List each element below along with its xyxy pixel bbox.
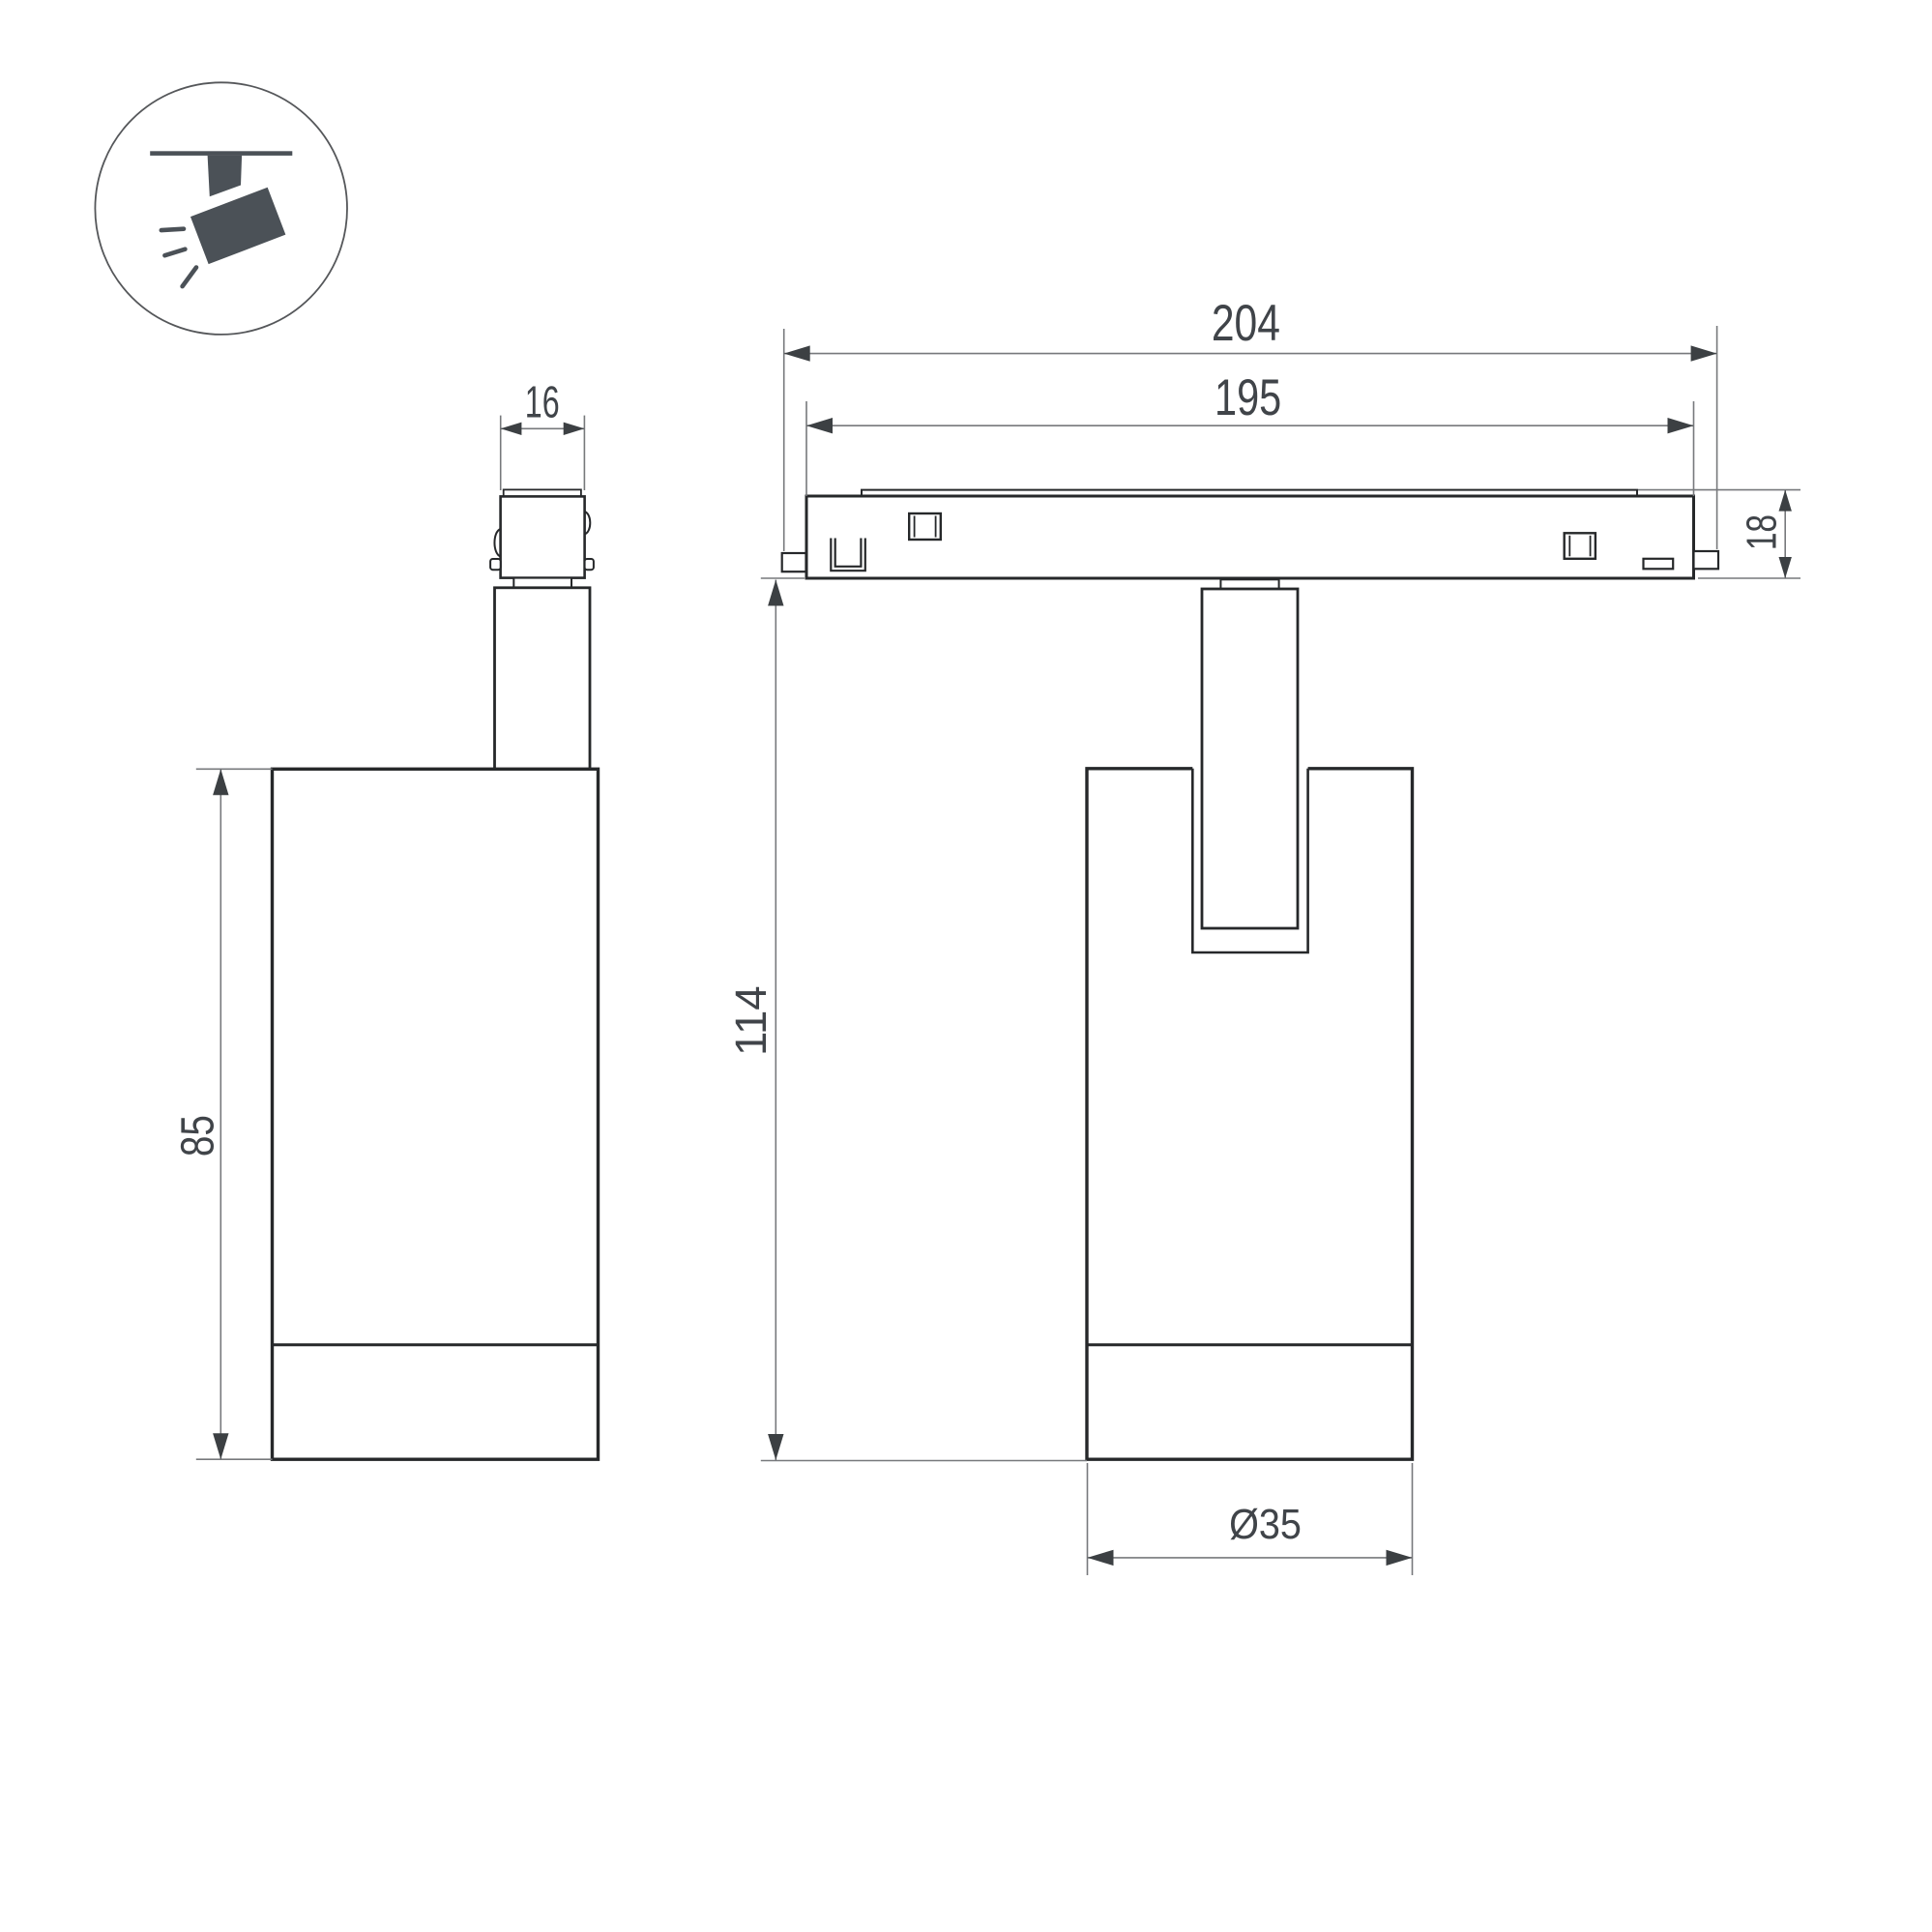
svg-text:18: 18 bbox=[1739, 514, 1785, 550]
svg-text:114: 114 bbox=[726, 985, 776, 1056]
svg-text:195: 195 bbox=[1215, 370, 1281, 427]
svg-text:85: 85 bbox=[173, 1115, 224, 1156]
svg-text:Ø35: Ø35 bbox=[1229, 1500, 1302, 1547]
svg-text:16: 16 bbox=[525, 378, 560, 427]
svg-text:204: 204 bbox=[1212, 294, 1280, 352]
